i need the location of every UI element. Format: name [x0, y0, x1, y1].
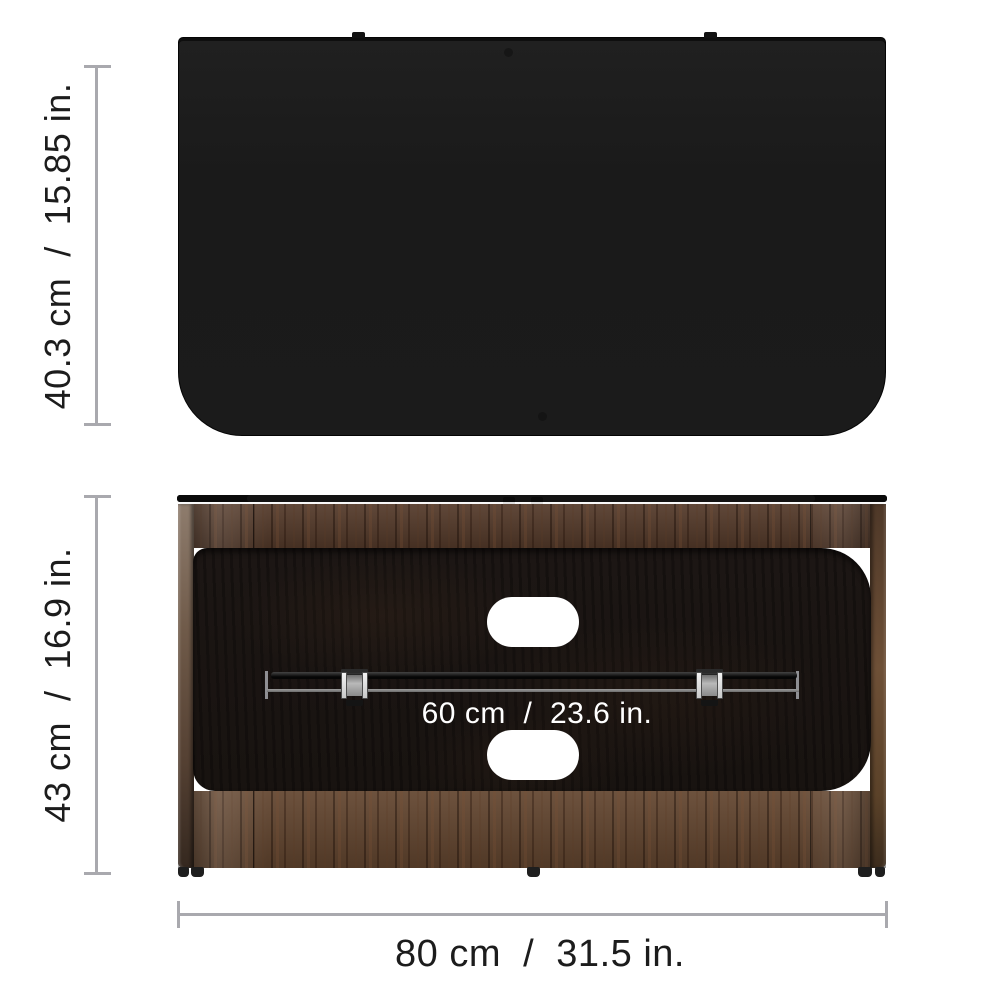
depth-dimension-label: 40.3 cm / 15.85 in. — [36, 36, 80, 456]
stand-foot — [875, 867, 885, 877]
height-dimension-line — [95, 496, 98, 874]
stand-foot — [178, 867, 189, 877]
clamp-rail — [362, 672, 368, 699]
depth-dimension-cap-top — [84, 65, 111, 68]
height-dimension-label: 43 cm / 16.9 in. — [36, 475, 80, 895]
stand-foot — [858, 867, 872, 877]
width-dimension-cap-left — [177, 901, 180, 928]
depth-dimension-line — [95, 66, 98, 426]
top-view-mark-bottom — [538, 412, 547, 421]
product-dimension-diagram: 40.3 cm / 15.85 in. 43 cm / 16.9 in. — [0, 0, 1000, 1000]
inner-width-dimension-label: 60 cm / 23.6 in. — [337, 697, 737, 731]
stand-foot — [527, 867, 540, 877]
cable-cutout-top — [487, 597, 579, 647]
top-view-mark-top — [504, 48, 513, 57]
top-view-tab-right — [704, 32, 717, 38]
inner-width-tick-left — [265, 671, 268, 699]
clamp-body — [702, 675, 717, 696]
top-view-silhouette — [178, 37, 886, 436]
stand-foot — [191, 867, 204, 877]
width-dimension-cap-right — [885, 901, 888, 928]
height-dimension-cap-top — [84, 495, 111, 498]
clamp-body — [347, 675, 362, 696]
clamp-rail — [717, 672, 723, 699]
wood-side-pillar-left — [178, 504, 194, 868]
height-dimension-cap-bottom — [84, 872, 111, 875]
depth-dimension-cap-bottom — [84, 423, 111, 426]
cable-cutout-bottom — [487, 730, 579, 780]
wood-bottom-band — [178, 791, 886, 868]
width-dimension-line — [178, 913, 887, 916]
wood-side-pillar-right — [870, 504, 886, 868]
wood-top-band — [178, 504, 886, 548]
top-view-tab-left — [352, 32, 365, 38]
width-dimension-label: 80 cm / 31.5 in. — [290, 932, 790, 976]
